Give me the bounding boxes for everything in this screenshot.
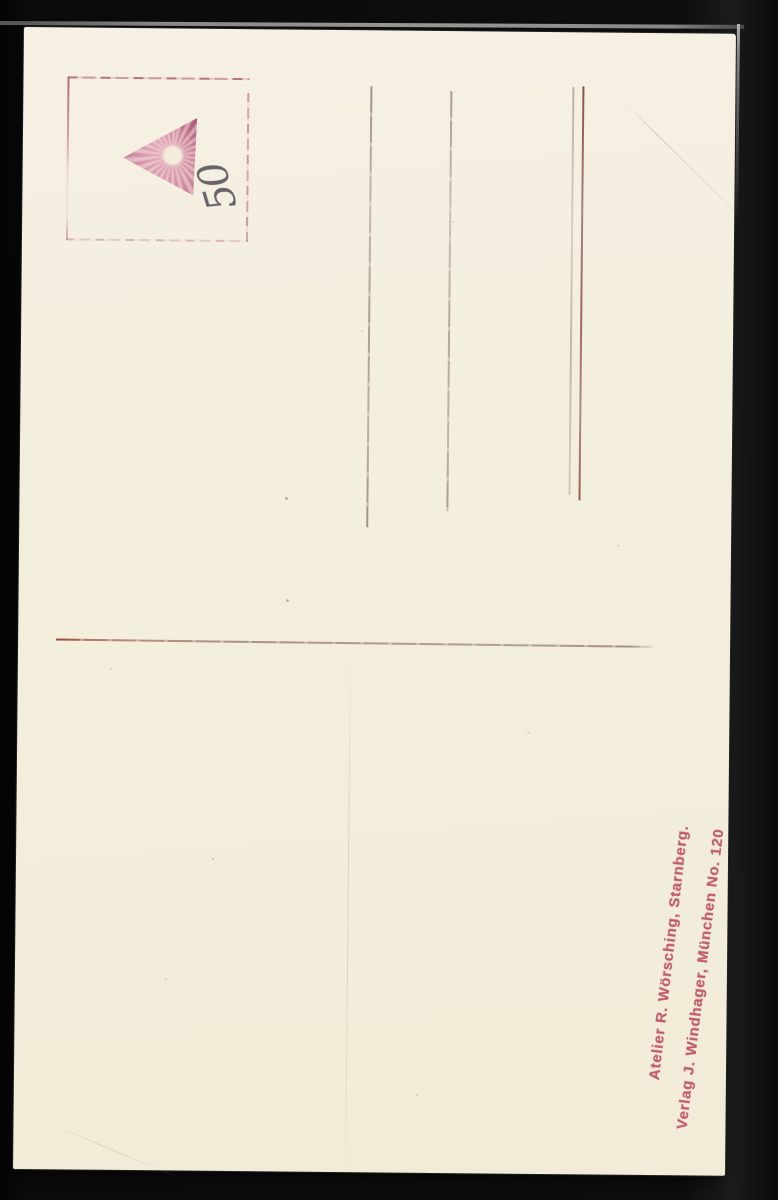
- address-line-3-red: [578, 86, 584, 500]
- scan-background: 50 Atelier R. Wörsching, Starnberg. Verl…: [0, 0, 778, 1200]
- address-line-3: [569, 87, 575, 495]
- postcard-back: 50 Atelier R. Wörsching, Starnberg. Verl…: [13, 27, 736, 1176]
- divider-line: [56, 639, 653, 648]
- stamp-box-line-top: [68, 76, 250, 80]
- paper-specks: [24, 27, 26, 29]
- address-line-2: [446, 91, 452, 511]
- stamp-box-line-bottom: [66, 238, 248, 242]
- address-line-fade: [366, 86, 372, 527]
- stamp-box-line-left: [66, 77, 70, 239]
- address-line-1: [366, 86, 372, 527]
- paper-texture-band: [345, 650, 351, 1190]
- address-line-fade: [446, 91, 452, 511]
- triangle-stamp-icon: [120, 113, 201, 200]
- paper-crease-top-right: [621, 99, 743, 219]
- stamp-center-hole: [164, 146, 182, 164]
- card-right-edge-highlight: [735, 24, 740, 224]
- paper-crease-bottom-left: [49, 1123, 188, 1181]
- handwritten-number: 50: [192, 159, 244, 215]
- stamp-box-line-right: [246, 93, 249, 241]
